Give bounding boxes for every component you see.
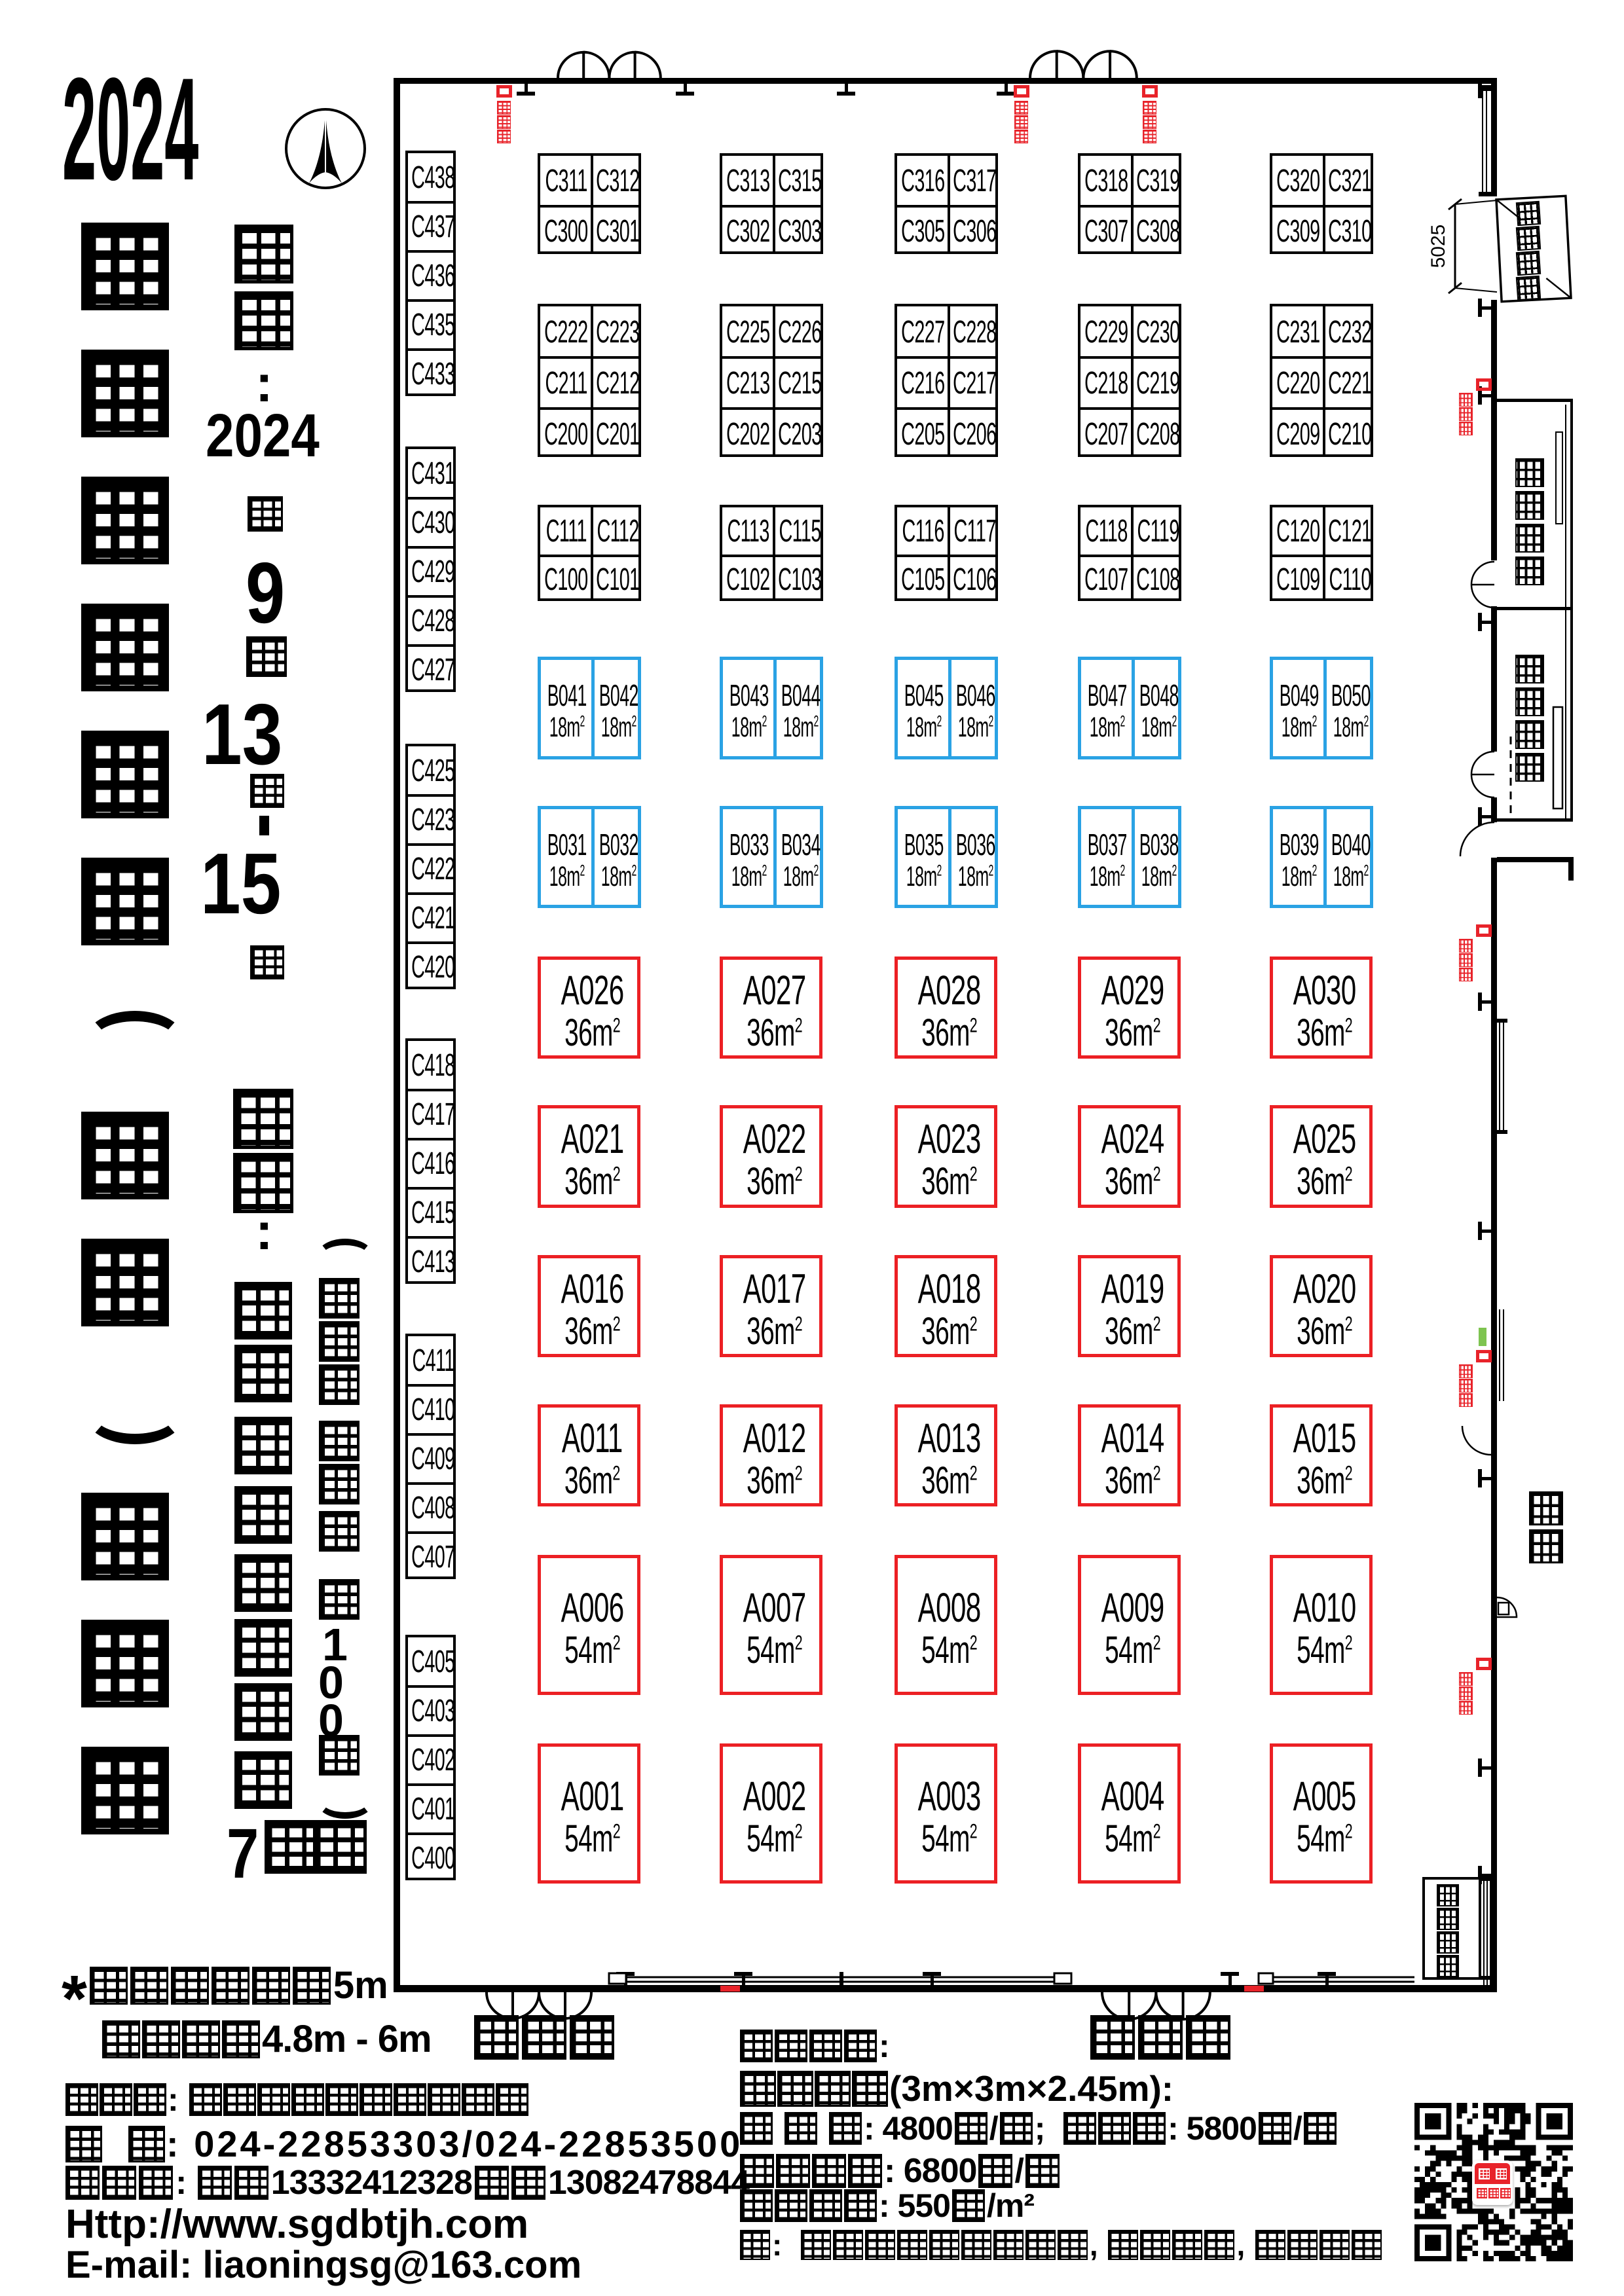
svg-text:5025: 5025 — [1428, 225, 1449, 268]
